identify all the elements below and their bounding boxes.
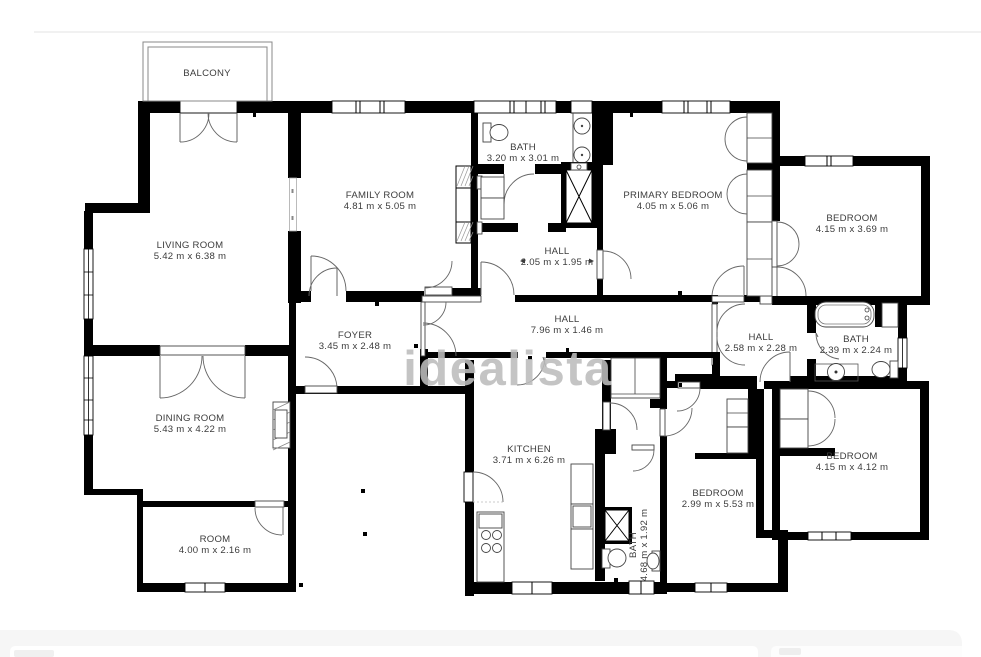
- svg-text:3.20 m x 3.01 m: 3.20 m x 3.01 m: [487, 153, 560, 164]
- svg-text:LIVING ROOM: LIVING ROOM: [157, 240, 224, 251]
- svg-text:DINING ROOM: DINING ROOM: [156, 413, 225, 424]
- svg-text:BEDROOM: BEDROOM: [692, 488, 743, 499]
- svg-text:5.43 m x 4.22 m: 5.43 m x 4.22 m: [154, 424, 227, 435]
- svg-text:HALL: HALL: [749, 332, 774, 343]
- svg-text:4.00 m x 2.16 m: 4.00 m x 2.16 m: [179, 545, 252, 556]
- svg-text:idealista: idealista: [403, 342, 613, 396]
- svg-text:2.39 m x 2.24 m: 2.39 m x 2.24 m: [820, 345, 893, 356]
- svg-text:BATH: BATH: [510, 142, 536, 153]
- svg-text:2.58 m x 2.28 m: 2.58 m x 2.28 m: [725, 343, 798, 354]
- svg-text:4.15 m x 4.12 m: 4.15 m x 4.12 m: [816, 462, 889, 473]
- svg-text:3.45 m x 2.48 m: 3.45 m x 2.48 m: [319, 341, 392, 352]
- svg-text:PRIMARY BEDROOM: PRIMARY BEDROOM: [623, 190, 722, 201]
- svg-text:BEDROOM: BEDROOM: [826, 213, 877, 224]
- svg-text:HALL: HALL: [545, 246, 570, 257]
- svg-text:FAMILY ROOM: FAMILY ROOM: [346, 190, 415, 201]
- svg-text:BATH: BATH: [843, 334, 869, 345]
- svg-text:HALL: HALL: [555, 314, 580, 325]
- svg-text:4.15 m x 3.69 m: 4.15 m x 3.69 m: [816, 224, 889, 235]
- svg-text:ROOM: ROOM: [200, 534, 231, 545]
- svg-text:7.96 m x 1.46 m: 7.96 m x 1.46 m: [531, 325, 604, 336]
- svg-text:5.42 m x 6.38 m: 5.42 m x 6.38 m: [154, 251, 227, 262]
- svg-text:2.05 m x 1.95 m: 2.05 m x 1.95 m: [521, 257, 594, 268]
- svg-text:4.05 m x 5.06 m: 4.05 m x 5.06 m: [637, 201, 710, 212]
- svg-text:BATH: BATH: [628, 532, 639, 558]
- svg-text:4.81 m x 5.05 m: 4.81 m x 5.05 m: [344, 201, 417, 212]
- svg-text:FOYER: FOYER: [338, 330, 372, 341]
- svg-text:2.99 m x 5.53 m: 2.99 m x 5.53 m: [682, 499, 755, 510]
- svg-text:BEDROOM: BEDROOM: [826, 451, 877, 462]
- svg-text:4.68 m x 1.92 m: 4.68 m x 1.92 m: [639, 509, 650, 582]
- svg-text:3.71 m x 6.26 m: 3.71 m x 6.26 m: [493, 455, 566, 466]
- svg-text:KITCHEN: KITCHEN: [507, 444, 551, 455]
- svg-text:BALCONY: BALCONY: [183, 68, 231, 79]
